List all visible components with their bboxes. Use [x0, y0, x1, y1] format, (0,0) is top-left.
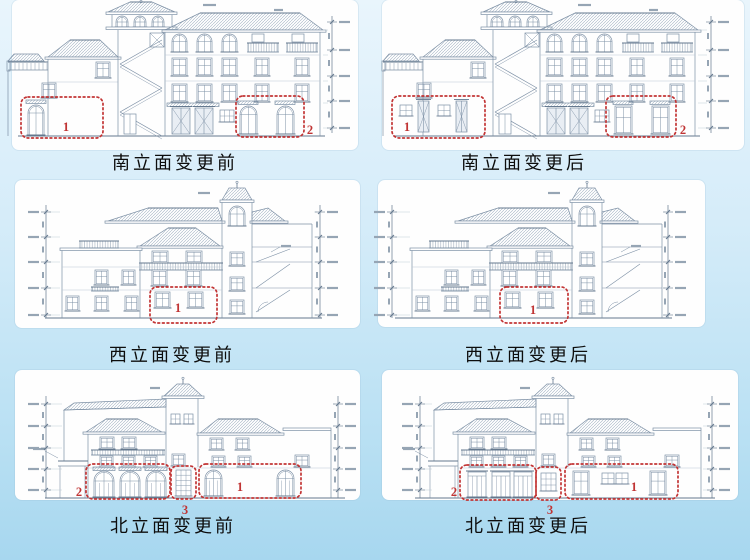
- change-marker-label: 1: [404, 120, 410, 134]
- caption-west-after: 西立面变更后: [398, 341, 658, 367]
- change-marker-label: 1: [631, 480, 637, 494]
- drawing-south-elevation-before: [7, 0, 350, 139]
- drawing-south-elevation-after: [382, 0, 729, 139]
- change-marker-label: 2: [76, 485, 82, 499]
- drawing-north-elevation-before: [28, 377, 356, 498]
- change-marker-label: 2: [307, 123, 313, 137]
- change-marker-label: 1: [175, 301, 181, 315]
- change-marker-label: 2: [451, 485, 457, 499]
- caption-south-after: 南立面变更后: [394, 149, 654, 175]
- caption-west-before: 西立面变更前: [42, 341, 302, 367]
- caption-north-before: 北立面变更前: [43, 512, 303, 538]
- change-marker-label: 1: [237, 480, 243, 494]
- drawing-west-elevation-before: [28, 181, 338, 318]
- drawing-west-elevation-after: [374, 181, 686, 318]
- slide-background: 1 2 1 2 1 1 2 3 1 2 3: [0, 0, 750, 560]
- drawing-north-elevation-after: [402, 377, 730, 498]
- change-marker-label: 1: [530, 303, 536, 317]
- change-marker-label: 1: [63, 120, 69, 134]
- elevation-drawings: 1 2 1 2 1 1 2 3 1 2 3: [0, 0, 750, 560]
- caption-south-before: 南立面变更前: [45, 149, 305, 175]
- caption-north-after: 北立面变更后: [398, 512, 658, 538]
- change-marker-label: 2: [680, 123, 686, 137]
